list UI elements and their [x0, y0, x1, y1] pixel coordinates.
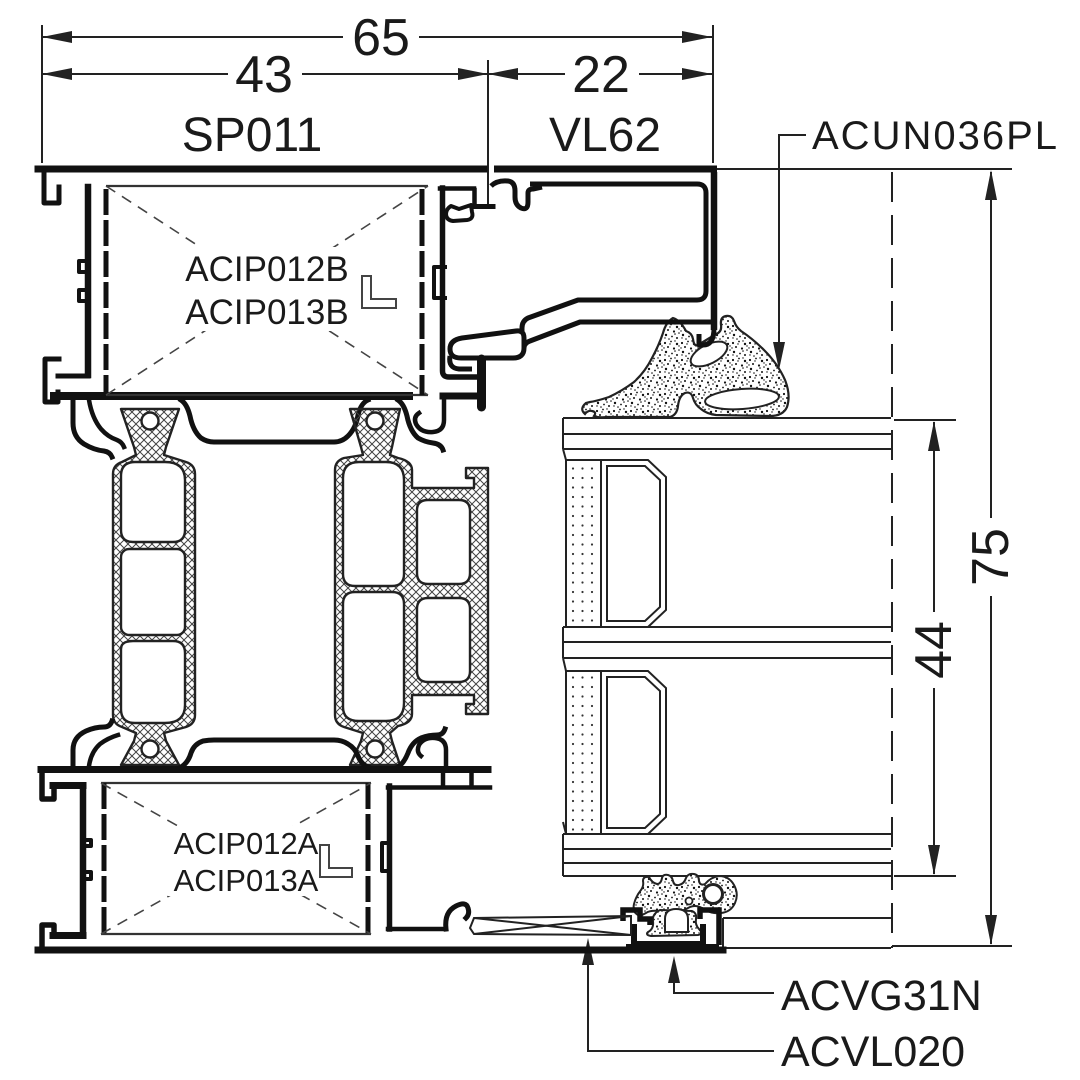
- svg-text:75: 75: [962, 528, 1020, 586]
- svg-text:ACIP013B: ACIP013B: [185, 293, 348, 332]
- svg-text:VL62: VL62: [549, 109, 661, 162]
- svg-text:43: 43: [235, 46, 293, 104]
- svg-text:ACVG31N: ACVG31N: [781, 972, 982, 1020]
- svg-text:ACVL020: ACVL020: [781, 1028, 965, 1076]
- svg-text:44: 44: [905, 621, 963, 679]
- svg-text:ACIP012B: ACIP012B: [185, 250, 348, 289]
- svg-text:22: 22: [572, 46, 630, 104]
- svg-text:65: 65: [352, 9, 410, 67]
- svg-text:SP011: SP011: [182, 109, 323, 162]
- svg-text:ACIP012A: ACIP012A: [174, 826, 319, 861]
- svg-text:ACUN036PL: ACUN036PL: [812, 114, 1059, 158]
- svg-text:ACIP013A: ACIP013A: [174, 863, 319, 898]
